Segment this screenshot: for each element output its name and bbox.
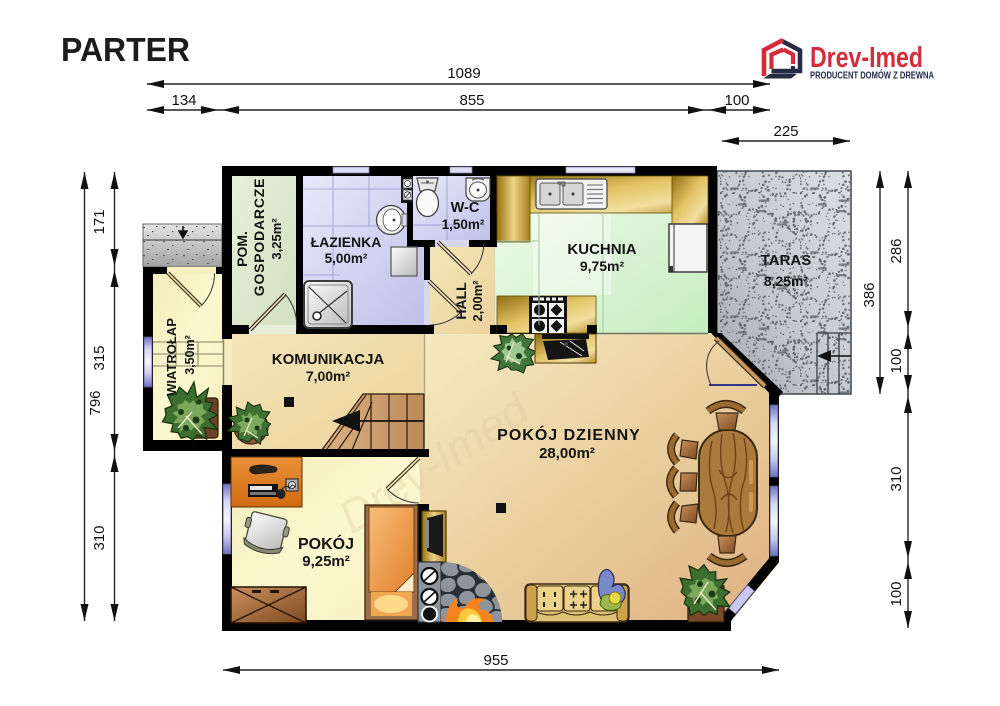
svg-text:386: 386 (861, 282, 878, 307)
svg-text:100: 100 (888, 348, 905, 373)
svg-text:PARTER: PARTER (61, 31, 190, 68)
svg-text:134: 134 (171, 92, 196, 109)
svg-text:171: 171 (91, 209, 108, 234)
svg-text:310: 310 (888, 466, 905, 491)
svg-text:2,00m²: 2,00m² (470, 280, 485, 322)
svg-text:955: 955 (483, 652, 508, 669)
svg-text:1089: 1089 (447, 65, 480, 82)
svg-text:TARAS: TARAS (761, 252, 812, 269)
svg-text:100: 100 (888, 581, 905, 606)
svg-text:7,00m²: 7,00m² (306, 368, 351, 384)
svg-text:796: 796 (87, 390, 104, 415)
svg-text:28,00m²: 28,00m² (539, 445, 595, 462)
svg-text:POKÓJ: POKÓJ (298, 534, 354, 553)
svg-text:8,25m²: 8,25m² (764, 273, 809, 289)
svg-text:W-C: W-C (451, 200, 480, 216)
svg-text:100: 100 (724, 92, 749, 109)
svg-text:WIATROŁAP: WIATROŁAP (164, 318, 179, 396)
svg-text:9,25m²: 9,25m² (302, 553, 350, 570)
svg-text:KOMUNIKACJA: KOMUNIKACJA (272, 351, 385, 368)
svg-text:ŁAZIENKA: ŁAZIENKA (311, 234, 382, 250)
svg-text:3,50m²: 3,50m² (183, 335, 197, 375)
svg-text:315: 315 (91, 345, 108, 370)
svg-text:310: 310 (91, 525, 108, 550)
svg-text:225: 225 (773, 123, 798, 140)
svg-text:GOSPODARCZE: GOSPODARCZE (251, 178, 267, 296)
svg-text:HALL: HALL (453, 282, 469, 320)
svg-text:POM.: POM. (234, 231, 250, 267)
svg-text:286: 286 (888, 238, 905, 263)
svg-text:PRODUCENT DOMÓW Z DREWNA: PRODUCENT DOMÓW Z DREWNA (810, 69, 934, 82)
svg-text:855: 855 (459, 92, 484, 109)
svg-text:3,25m²: 3,25m² (269, 218, 284, 260)
svg-text:KUCHNIA: KUCHNIA (567, 241, 636, 258)
svg-text:POKÓJ DZIENNY: POKÓJ DZIENNY (497, 425, 641, 444)
svg-text:9,75m²: 9,75m² (580, 258, 625, 274)
svg-text:1,50m²: 1,50m² (442, 217, 485, 232)
svg-text:5,00m²: 5,00m² (325, 251, 368, 266)
